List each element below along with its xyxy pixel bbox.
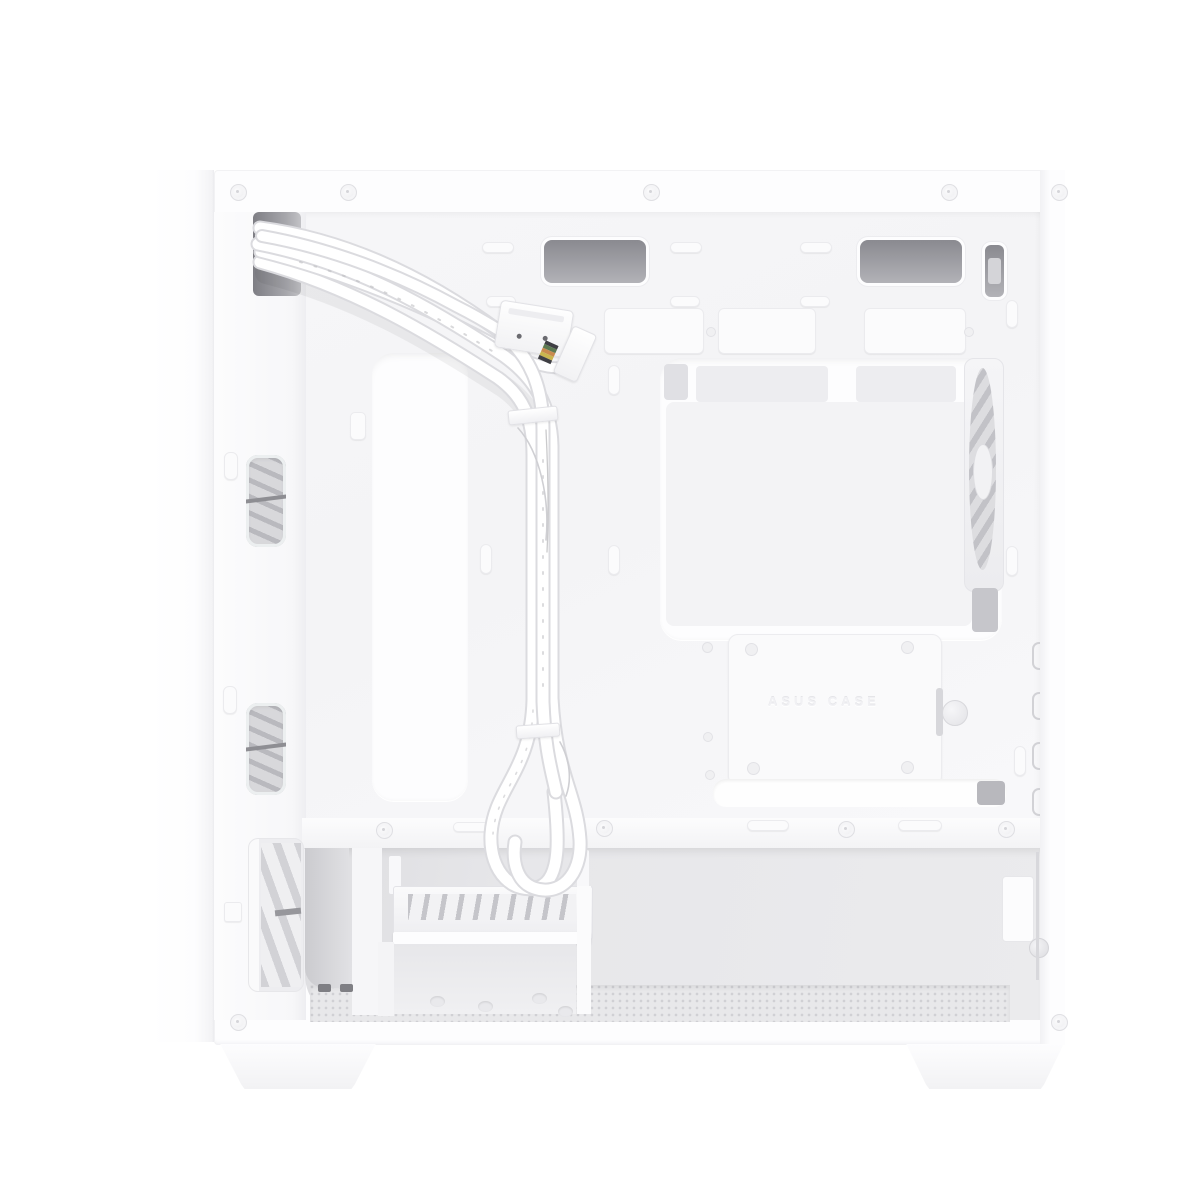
case-foot-front: [217, 1044, 379, 1089]
connector-pin-dot: [516, 333, 522, 339]
case-foot-rear: [903, 1044, 1067, 1089]
connector-ridge: [508, 308, 564, 323]
front-panel-cable-bundle: [0, 0, 1200, 1200]
pc-case-product-photo: ASUS CASE: [0, 0, 1200, 1200]
